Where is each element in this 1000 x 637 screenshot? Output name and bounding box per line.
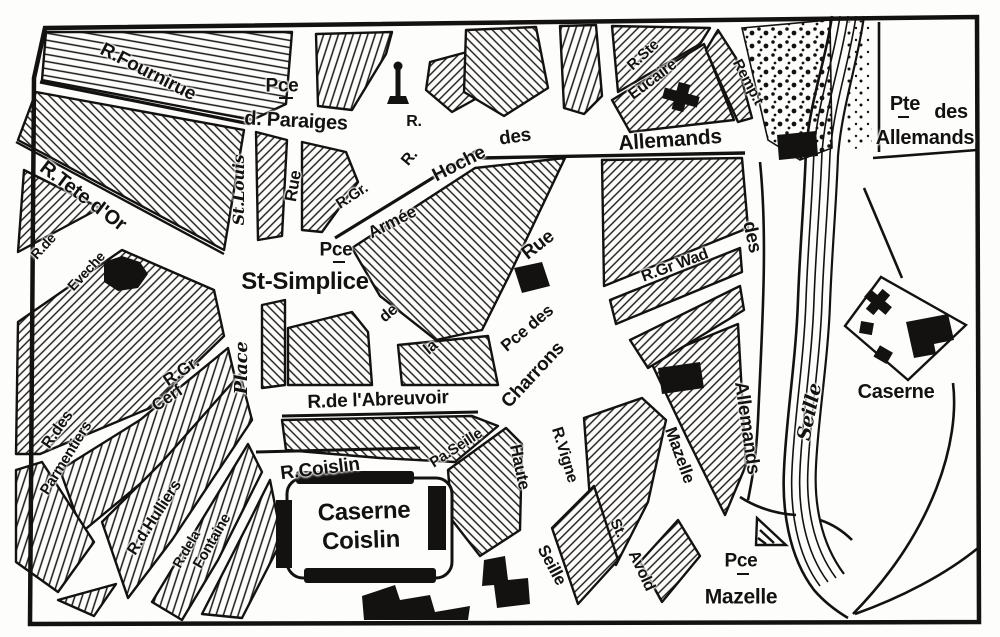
map-page: R.Fournirue Pce d. Paraiges R. R. Armée …	[0, 0, 1000, 637]
map-canvas	[0, 0, 1000, 637]
monument-icon	[387, 62, 409, 105]
place-label-caserne-right: Caserne	[858, 382, 935, 402]
place-label-caserne-coislin-1: Caserne	[317, 498, 410, 525]
place-label-caserne-coislin-2: Coislin	[322, 528, 401, 555]
place-label-pte-allemands: Allemands	[876, 128, 974, 148]
caserne-right-enclosure	[845, 277, 966, 380]
place-label-paraiges: d. Paraiges	[244, 108, 348, 133]
central-building-block	[514, 262, 550, 293]
street-label-st-louis: St.Louis	[231, 155, 247, 226]
superscript-dash	[737, 573, 749, 575]
place-label-st-simplice: St-Simplice	[241, 270, 368, 294]
street-label-r1: R.	[406, 114, 421, 130]
place-label-pte-des: des	[934, 102, 968, 122]
triangle-icon	[756, 518, 786, 545]
superscript-dash	[333, 261, 345, 263]
street-label-abreuvoir: R.de l'Abreuvoir	[307, 388, 449, 412]
street-label-des-allemands: des	[498, 125, 532, 148]
coislin-annex-buildings	[362, 585, 470, 620]
place-label-mazelle: Mazelle	[705, 587, 778, 608]
superscript-dash	[279, 97, 293, 99]
place-label-pce-mazelle: Pce	[725, 552, 758, 571]
place-label-simplice-pce: Pce	[320, 241, 353, 260]
place-label-pte: Pte	[890, 94, 920, 114]
porte-gate-icon	[777, 131, 818, 160]
place-label-paraiges-pce: Pce	[266, 77, 299, 96]
place-label-place: Place	[233, 342, 251, 395]
superscript-dash	[898, 116, 909, 118]
